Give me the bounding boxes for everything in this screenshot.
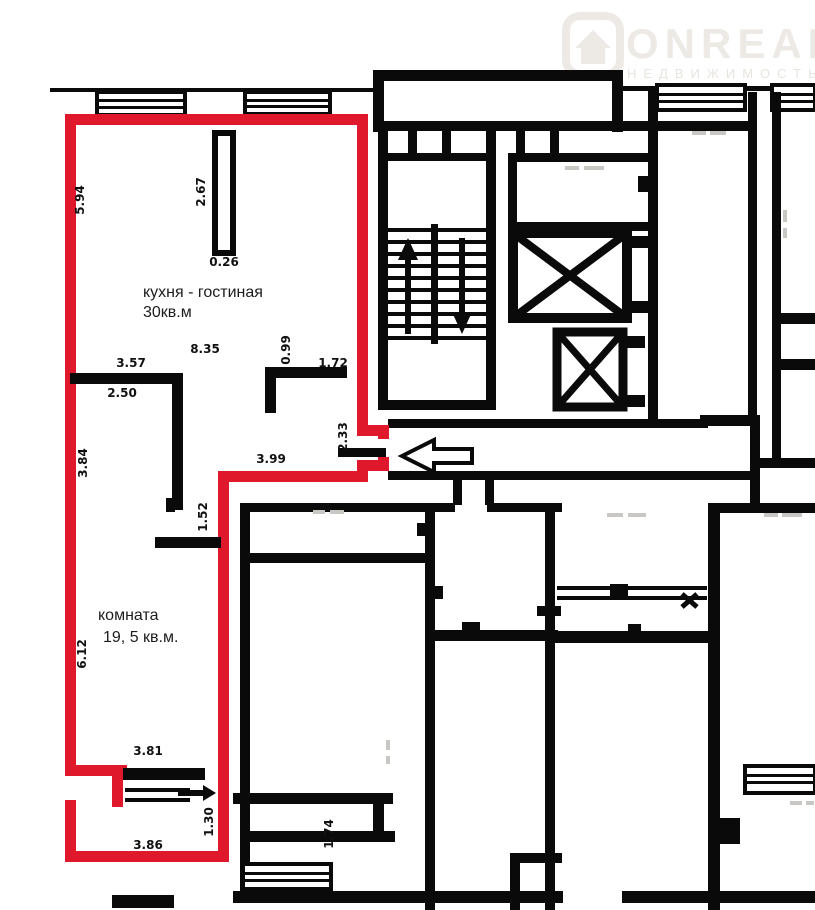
- dimension-label: 3.86: [133, 838, 163, 852]
- floor-plan-canvas: ONREALT НЕДВИЖИМОСТЬ: [0, 0, 815, 910]
- entrance-arrow-icon: [402, 440, 472, 472]
- dimension-label: 3.84: [76, 448, 90, 478]
- window-icon: [97, 92, 185, 115]
- floor-plan: ONREALT НЕДВИЖИМОСТЬ: [0, 0, 815, 910]
- dimension-label: 8.35: [190, 342, 220, 356]
- kitchen-area-label: 30кв.м: [143, 304, 192, 321]
- stair-treads: [386, 224, 488, 344]
- window-icon: [243, 864, 331, 889]
- elevator-shaft-small: [557, 332, 645, 407]
- door-swing-icon: [682, 594, 697, 607]
- window-icon: [245, 92, 330, 114]
- elevator-shaft-large: [513, 233, 649, 318]
- dimension-label: 1.30: [202, 807, 216, 837]
- dimension-label: 0.26: [209, 255, 239, 269]
- dimension-label: 1.72: [318, 356, 348, 370]
- staircase: [378, 131, 496, 410]
- dimension-labels: 5.942.670.268.353.572.503.840.991.722.33…: [73, 177, 350, 852]
- outer-walls: [50, 85, 815, 115]
- corridor-walls: [338, 415, 815, 510]
- room-area-label: 19, 5 кв.м.: [103, 629, 178, 646]
- dimension-label: 1.74: [322, 819, 336, 849]
- watermark-subtitle: НЕДВИЖИМОСТЬ: [627, 66, 815, 81]
- dimension-label: 2.50: [107, 386, 137, 400]
- dimension-label: 6.12: [75, 639, 89, 669]
- vent-shaft: [215, 133, 233, 253]
- window-icon: [745, 766, 815, 793]
- watermark-brand: ONREALT: [626, 20, 815, 67]
- house-logo-icon: [566, 16, 620, 74]
- dimension-label: 1.52: [196, 502, 210, 532]
- dimension-label: 0.99: [279, 335, 293, 365]
- neighbor-walls-right: [748, 92, 815, 460]
- kitchen-label: кухня - гостиная: [143, 284, 263, 301]
- dimension-label: 3.57: [116, 356, 146, 370]
- room-label: комната: [98, 607, 159, 624]
- dimension-label: 2.33: [336, 422, 350, 452]
- apartment-interior-walls: [70, 133, 347, 802]
- dimension-label: 3.99: [256, 452, 286, 466]
- dimension-label: 2.67: [194, 177, 208, 207]
- window-icon: [657, 85, 745, 110]
- dimension-label: 5.94: [73, 185, 87, 215]
- dimension-label: 3.81: [133, 744, 163, 758]
